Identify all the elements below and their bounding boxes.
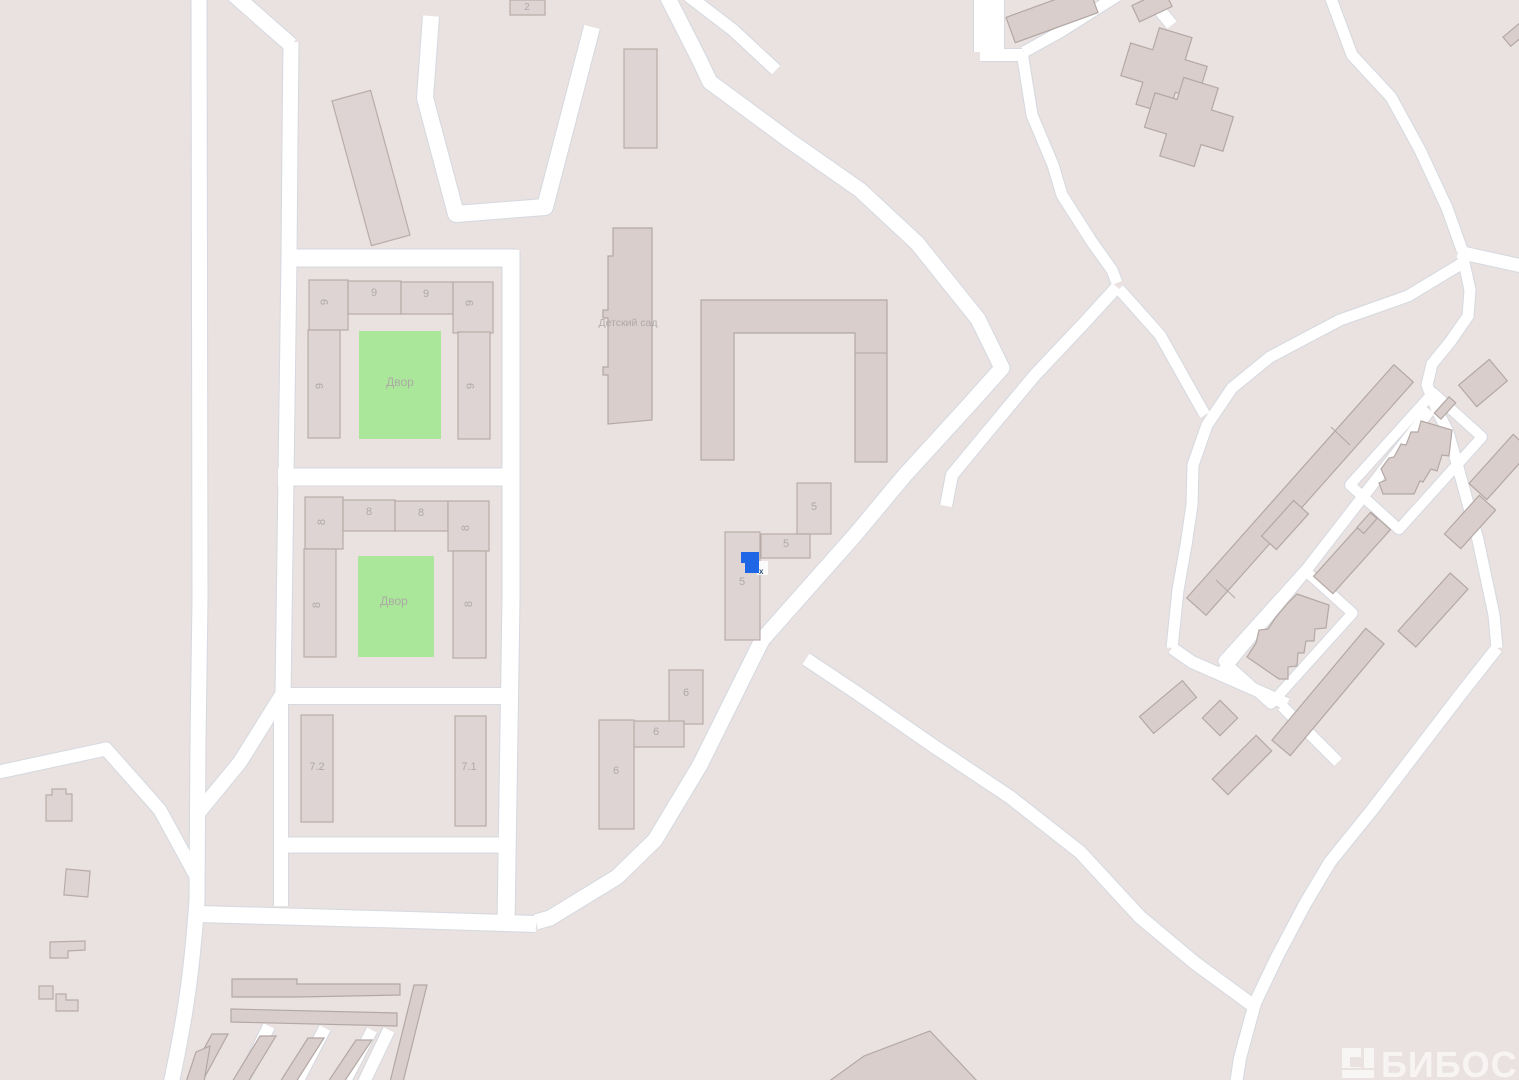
svg-text:9: 9 [465,383,477,389]
svg-text:8: 8 [311,602,323,608]
svg-text:6: 6 [683,687,689,699]
svg-text:9: 9 [464,300,476,306]
svg-text:6: 6 [613,765,619,777]
svg-text:БИБОСС: БИБОСС [1381,1044,1519,1080]
svg-text:Двор: Двор [380,594,408,608]
svg-text:5: 5 [739,576,745,588]
svg-text:5: 5 [783,538,789,550]
svg-text:8: 8 [418,507,424,519]
svg-text:8: 8 [460,525,472,531]
svg-text:7.2: 7.2 [309,761,324,773]
svg-text:5: 5 [811,501,817,513]
svg-text:Двор: Двор [386,375,414,389]
svg-text:9: 9 [314,383,326,389]
svg-text:Детский сад: Детский сад [598,317,657,329]
svg-text:9: 9 [319,299,331,305]
svg-text:9: 9 [423,288,429,300]
svg-text:7.1: 7.1 [461,761,476,773]
svg-text:8: 8 [366,506,372,518]
svg-text:9: 9 [371,287,377,299]
svg-text:8: 8 [316,519,328,525]
svg-text:6: 6 [653,726,659,738]
svg-text:x: x [759,567,764,576]
svg-text:8: 8 [463,601,475,607]
svg-text:2: 2 [524,2,530,13]
